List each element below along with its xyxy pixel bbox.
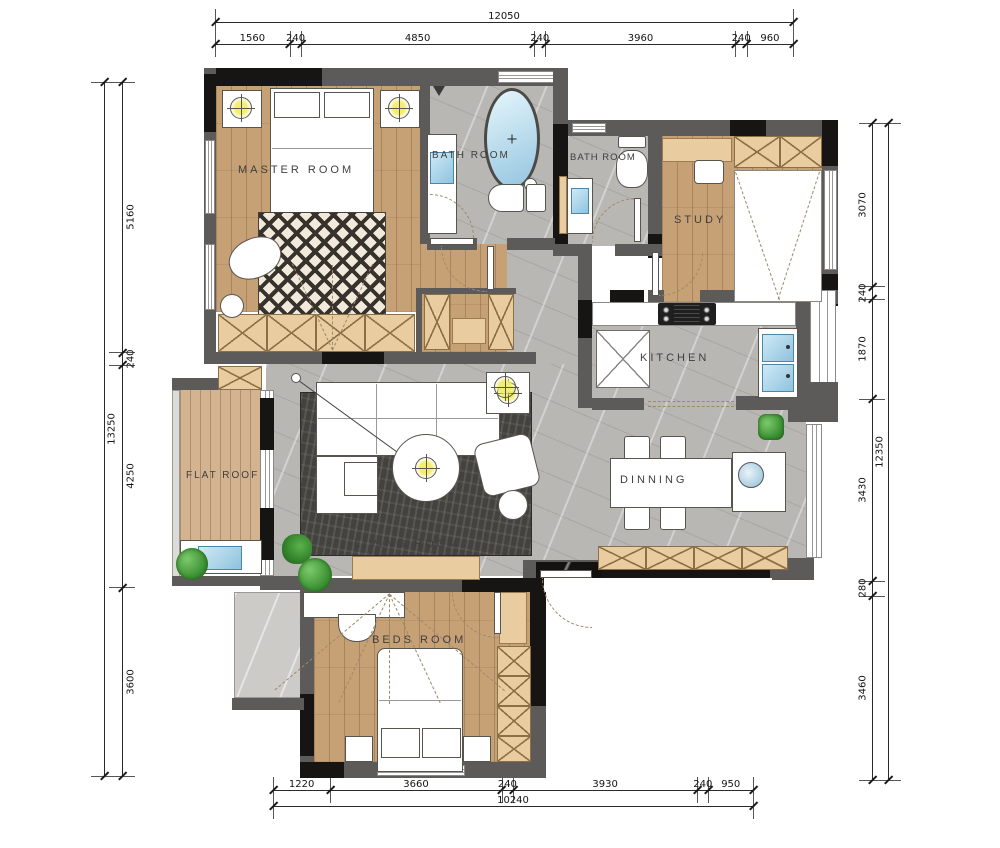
wall-segment [232, 698, 304, 710]
wall-segment-black [730, 120, 766, 136]
beds-wardrobe [497, 676, 531, 706]
closet-cabinet [488, 294, 514, 350]
wall-kitchen-right [796, 302, 810, 382]
tv-cabinet [352, 556, 480, 580]
study-cabinet [734, 136, 780, 168]
window-kitchen-shaft [810, 290, 836, 394]
beds-nightstand [463, 736, 491, 762]
beds-wardrobe [497, 706, 531, 736]
wall-segment [553, 68, 568, 126]
light-projection-line [332, 265, 333, 350]
room-label-beds: BEDS ROOM [372, 634, 466, 646]
floor-flat-roof-deck [180, 390, 260, 542]
dining-cabinet [598, 546, 646, 570]
wall-segment-black [462, 578, 544, 592]
beds-wardrobe [497, 646, 531, 676]
window-bath1-top [498, 71, 558, 83]
study-chair [694, 160, 724, 184]
dining-cabinet [646, 546, 694, 570]
window-dining-right [806, 424, 822, 558]
floor-side-platform [234, 592, 306, 698]
master-pillow [274, 92, 320, 118]
bath1-door-leaf [430, 238, 474, 245]
wall-segment [592, 398, 644, 410]
wall-beds-right-black [530, 592, 546, 706]
faucet-dot [786, 345, 790, 349]
study-closet [734, 170, 822, 302]
beds-door-leaf [494, 592, 501, 634]
window-master-left-2 [205, 244, 215, 310]
beds-pillow [381, 728, 420, 758]
toilet-icon [488, 184, 524, 212]
room-label-dinning: DINNING [620, 474, 687, 486]
lamp-icon [415, 457, 437, 479]
master-wardrobe [218, 314, 267, 352]
floor-plan-drawing: MASTER ROOM BATH ROOM BATH ROOM STUDY KI… [0, 0, 1000, 848]
beds-wardrobe [497, 736, 531, 762]
light-projection-line [389, 594, 390, 704]
dining-chair [660, 436, 686, 460]
plant-icon [298, 558, 332, 592]
dining-cabinet [694, 546, 742, 570]
kitchen-sliding-door-line [648, 406, 734, 407]
bath2-wood-panel [559, 176, 567, 234]
beds-tall-cabinet [499, 592, 527, 644]
sofa-cushion-line [376, 384, 377, 454]
room-label-flat-roof: FLAT ROOF [186, 470, 259, 481]
wall-segment [736, 396, 796, 410]
window-study-right [824, 170, 837, 270]
wall-bath2-study-divider [648, 136, 662, 250]
lamp-icon [494, 376, 516, 398]
toilet-tank [526, 184, 546, 212]
study-desk [662, 138, 732, 162]
study-cabinet [780, 136, 822, 168]
living-ottoman [498, 490, 528, 520]
toilet-tank [618, 136, 646, 148]
window-master-left-1 [205, 140, 215, 214]
floor-lamp-base [291, 373, 301, 383]
dining-chair [660, 506, 686, 530]
closet-cabinet [424, 294, 450, 350]
wall-segment-black [204, 74, 216, 132]
lamp-icon [388, 97, 410, 119]
sink-icon [762, 364, 794, 392]
wall-segment-black [260, 508, 274, 560]
sofa-seat-line [318, 418, 498, 419]
room-label-master: MASTER ROOM [238, 164, 354, 176]
dining-chair [624, 436, 650, 460]
entry-door-leaf [540, 570, 592, 578]
wall-segment-black [322, 352, 384, 364]
wall-beds-right [530, 706, 546, 778]
master-wardrobe [365, 314, 415, 352]
master-pillow [324, 92, 370, 118]
room-label-bath2: BATH ROOM [570, 152, 636, 163]
dining-chair [624, 506, 650, 530]
master-door-leaf [487, 246, 494, 290]
plant-icon [176, 548, 208, 580]
plant-icon [758, 414, 784, 440]
dining-cabinet [742, 546, 788, 570]
faucet-dot [786, 374, 790, 378]
master-rug [258, 212, 386, 328]
flat-roof-cabinet [218, 366, 262, 390]
stove-icon [658, 303, 716, 325]
kitchen-sliding-door-line [648, 401, 734, 402]
beds-pillow [422, 728, 461, 758]
closet-drawer [452, 318, 486, 344]
bath2-door-leaf [634, 198, 641, 242]
wall-flat-roof-top [172, 378, 218, 390]
wall-closet-left [416, 288, 422, 364]
beds-nightstand [345, 736, 373, 762]
bathtub-icon [484, 88, 540, 190]
study-door-leaf [652, 252, 659, 296]
wall-segment-black [578, 300, 592, 338]
sink-icon [571, 188, 589, 214]
wall-segment-black [210, 68, 322, 86]
room-label-study: STUDY [674, 214, 726, 226]
master-stool [220, 294, 244, 318]
master-bed-blanket-line [272, 148, 372, 149]
beds-blanket-line [379, 700, 461, 701]
living-side-cube [344, 462, 378, 496]
room-label-kitchen: KITCHEN [640, 352, 709, 364]
wall-segment-black [300, 762, 344, 778]
lamp-icon [230, 97, 252, 119]
floor-hall-tile [507, 246, 578, 364]
wall-segment-black [260, 398, 274, 450]
floor-plan-scene: 1560240485024039602409601205012203660240… [0, 0, 1000, 848]
wall-segment-black [822, 120, 838, 166]
entry-door-arc [542, 578, 592, 628]
room-label-living: LIVING ROOM [354, 538, 460, 550]
window-bath2-top [572, 123, 606, 133]
master-wardrobe [267, 314, 316, 352]
room-label-bath1: BATH ROOM [432, 150, 510, 161]
kettle-icon [738, 462, 764, 488]
wall-segment [507, 238, 555, 250]
